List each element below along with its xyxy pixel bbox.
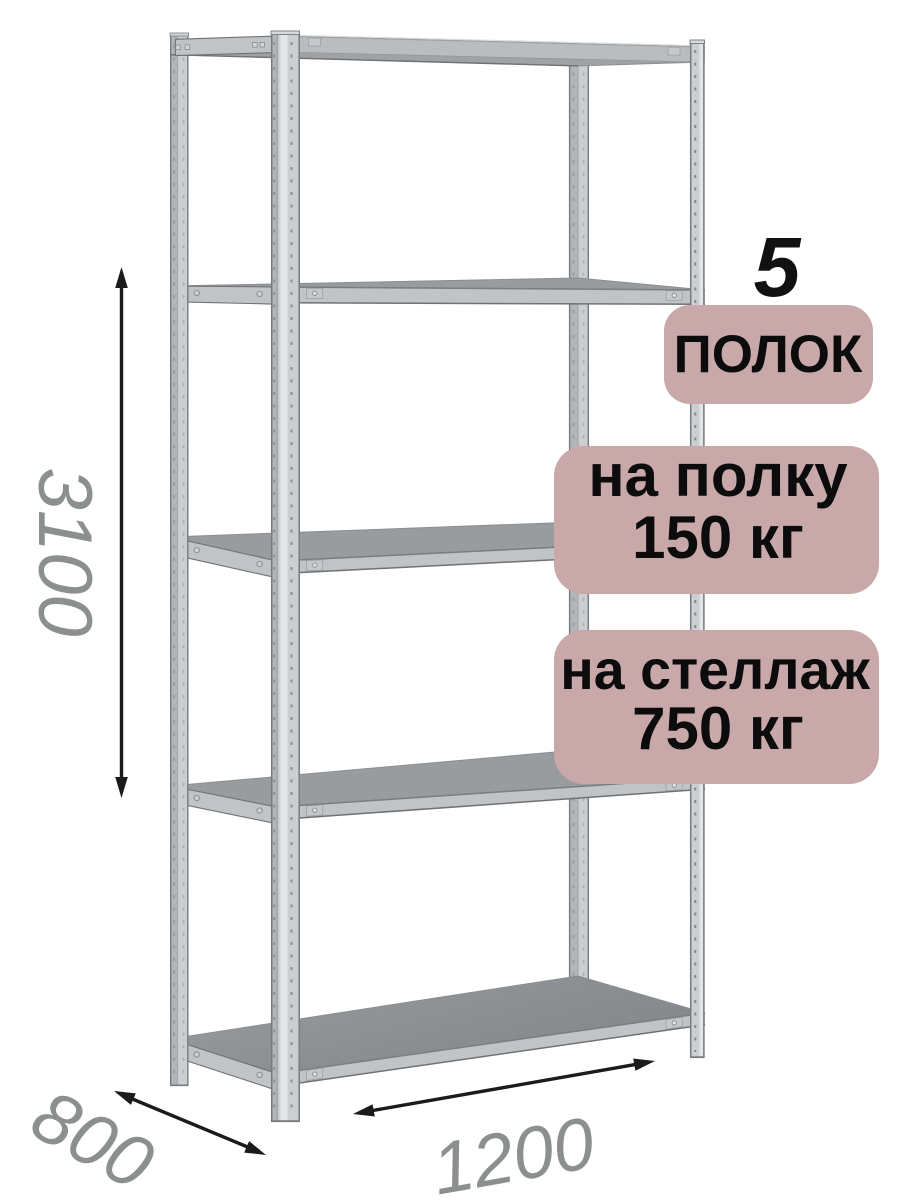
svg-text:1200: 1200 bbox=[426, 1102, 600, 1200]
svg-text:на полку: на полку bbox=[588, 442, 848, 509]
svg-text:750 кг: 750 кг bbox=[632, 695, 804, 762]
svg-text:ПОЛОК: ПОЛОК bbox=[674, 325, 863, 384]
svg-text:150 кг: 150 кг bbox=[632, 504, 804, 571]
svg-text:5: 5 bbox=[754, 220, 802, 314]
svg-text:3100: 3100 bbox=[22, 467, 107, 636]
svg-text:на стеллаж: на стеллаж bbox=[560, 639, 870, 701]
svg-text:800: 800 bbox=[19, 1073, 167, 1200]
